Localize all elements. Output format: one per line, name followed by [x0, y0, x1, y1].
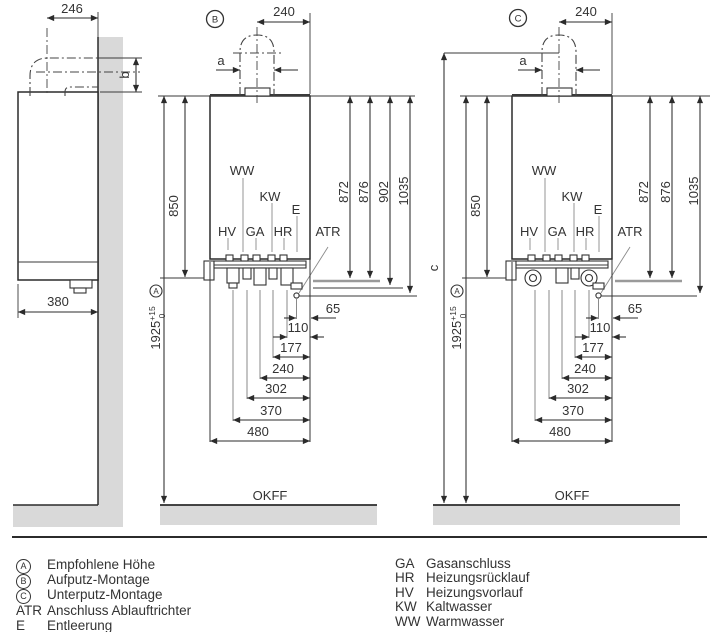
legend-label: Entleerung [47, 618, 112, 632]
legend-row: E Entleerung [16, 618, 191, 632]
dim-370-c-label: 370 [562, 403, 584, 418]
legend-label: Empfohlene Höhe [47, 557, 155, 572]
dim-480-c-label: 480 [549, 424, 571, 439]
dim-1035-b-label: 1035 [396, 177, 411, 206]
label-kw-b: KW [260, 189, 282, 204]
floor-label-c: OKFF [555, 488, 590, 503]
badge-c-label: C [515, 14, 522, 25]
dim-480-b-label: 480 [247, 424, 269, 439]
legend-row: A Empfohlene Höhe [16, 557, 191, 572]
dim-1925-c-tol-plus: +15 [448, 306, 458, 321]
legend-label: Unterputz-Montage [47, 587, 163, 602]
flue-elbow [30, 28, 140, 96]
dim-1925-b-tol-plus: +15 [147, 306, 157, 321]
dim-1925-b-value: 1925 [148, 321, 163, 350]
legend-label: Heizungsrücklauf [426, 570, 530, 585]
label-atr-b: ATR [315, 224, 340, 239]
floor-b: OKFF [160, 488, 377, 525]
dim-370-b-label: 370 [260, 403, 282, 418]
badge-a-c: A [454, 287, 460, 296]
front-view-unterputz: C 240 a c A 1925+150 [426, 4, 710, 525]
label-ww-c: WW [532, 163, 557, 178]
side-view: 246 b 380 [13, 1, 142, 527]
front-view-aufputz: B 240 a A 1925+150 [147, 4, 417, 525]
dim-902-b-label: 902 [376, 181, 391, 203]
dim-850-c-label: 850 [468, 195, 483, 217]
right-dims-c: 872 876 1035 [601, 96, 701, 296]
label-hv-c: HV [520, 224, 538, 239]
dim-240-c: 240 [559, 4, 612, 94]
legend-label: Anschluss Ablauftrichter [47, 603, 191, 618]
dim-1925-b-tol-zero: 0 [157, 313, 167, 318]
dim-302-c-label: 302 [567, 381, 589, 396]
dim-c-label: c [426, 264, 441, 271]
legend-row: HR Heizungsrücklauf [395, 570, 530, 584]
legend-label: Kaltwasser [426, 599, 492, 614]
dim-302-b-label: 302 [265, 381, 287, 396]
label-e-b: E [292, 202, 301, 217]
technical-drawing: 246 b 380 B 24 [0, 0, 712, 535]
legend-key-hv: HV [395, 585, 426, 600]
dim-850-b: 850 [160, 96, 204, 278]
dim-c: c [426, 53, 444, 503]
label-ga-b: GA [246, 224, 265, 239]
dim-177-b-label: 177 [280, 340, 302, 355]
hydraulic-connections-b [204, 255, 306, 298]
dim-1925-c-value: 1925 [449, 321, 464, 350]
dim-a-b-label: a [217, 53, 225, 68]
legend-left-column: A Empfohlene Höhe B Aufputz-Montage C Un… [16, 557, 191, 632]
dim-240-bottom-b-label: 240 [272, 361, 294, 376]
legend-row: B Aufputz-Montage [16, 572, 191, 587]
dim-65-c-label: 65 [628, 301, 642, 316]
boiler-side-body [18, 92, 98, 280]
dim-876-c-label: 876 [658, 181, 673, 203]
label-hv-b: HV [218, 224, 236, 239]
label-ww-b: WW [230, 163, 255, 178]
dim-177-c-label: 177 [582, 340, 604, 355]
label-atr-c: ATR [617, 224, 642, 239]
dim-876-b-label: 876 [356, 181, 371, 203]
label-kw-c: KW [562, 189, 584, 204]
flue-stub-c [547, 88, 572, 96]
dim-246: 246 [47, 1, 98, 37]
dim-240-bottom-c-label: 240 [574, 361, 596, 376]
legend-row: GA Gasanschluss [395, 556, 530, 570]
label-e-c: E [594, 202, 603, 217]
dim-246-label: 246 [61, 1, 83, 16]
dim-110-c-label: 110 [590, 320, 611, 335]
legend-key-hr: HR [395, 570, 426, 585]
bottom-dims-b: 65 110 177 240 302 370 480 [210, 301, 340, 441]
legend-label: Warmwasser [426, 614, 504, 629]
dim-850-b-label: 850 [166, 195, 181, 217]
dim-1035-c-label: 1035 [686, 177, 701, 206]
flue-pipe-b [233, 27, 281, 103]
dim-1925-c: A 1925+150 [448, 96, 468, 503]
legend-row: HV Heizungsvorlauf [395, 585, 530, 599]
badge-a-b: A [153, 287, 159, 296]
label-hr-b: HR [274, 224, 293, 239]
legend-row: ATR Anschluss Ablauftrichter [16, 603, 191, 618]
dim-a-c-label: a [519, 53, 527, 68]
legend-separator [12, 536, 707, 538]
drain-funnel-point-c [596, 293, 601, 298]
dim-872-b-label: 872 [336, 181, 351, 203]
right-dims-b: 872 876 902 1035 [299, 96, 417, 296]
drain-funnel-point-b [294, 293, 299, 298]
floor-c: OKFF [433, 488, 680, 525]
wall [98, 37, 123, 527]
badge-b: B [207, 11, 224, 28]
legend-row: KW Kaltwasser [395, 599, 530, 613]
dim-240-b: 240 [257, 4, 310, 94]
legend-label: Gasanschluss [426, 556, 511, 571]
dim-1925-b: A 1925+150 [147, 96, 167, 503]
legend-label: Aufputz-Montage [47, 572, 150, 587]
legend-label: Heizungsvorlauf [426, 585, 523, 600]
floor-side [13, 505, 118, 527]
legend-key-ww: WW [395, 614, 426, 629]
legend-row: C Unterputz-Montage [16, 587, 191, 602]
label-hr-c: HR [576, 224, 595, 239]
legend-key-e: E [16, 618, 47, 632]
dim-65-b-label: 65 [326, 301, 340, 316]
legend-key-kw: KW [395, 599, 426, 614]
flue-stub-b [245, 88, 270, 96]
dim-1925-c-label: 1925+150 [448, 306, 468, 350]
badge-b-label: B [212, 15, 218, 26]
legend-key-atr: ATR [16, 603, 47, 618]
installation-dimension-drawing: 246 b 380 B 24 [0, 0, 712, 632]
legend-right-column: GA Gasanschluss HR Heizungsrücklauf HV H… [395, 556, 530, 628]
floor-label-b: OKFF [253, 488, 288, 503]
dim-240-b-label: 240 [273, 4, 295, 19]
dim-872-c-label: 872 [636, 181, 651, 203]
label-ga-c: GA [548, 224, 567, 239]
hydraulic-connections-c [506, 255, 608, 298]
legend-row: WW Warmwasser [395, 614, 530, 628]
dim-110-b-label: 110 [288, 320, 309, 335]
boiler-side-bottom-connections [70, 280, 92, 293]
dim-1925-c-tol-zero: 0 [458, 313, 468, 318]
badge-c: C [510, 10, 527, 27]
legend-key-ga: GA [395, 556, 426, 571]
dim-b-label: b [117, 71, 132, 78]
dim-240-c-label: 240 [575, 4, 597, 19]
bottom-dims-c: 65 110 177 240 302 370 480 [512, 301, 642, 441]
dim-850-c: 850 [462, 96, 506, 278]
dim-380-label: 380 [47, 294, 69, 309]
